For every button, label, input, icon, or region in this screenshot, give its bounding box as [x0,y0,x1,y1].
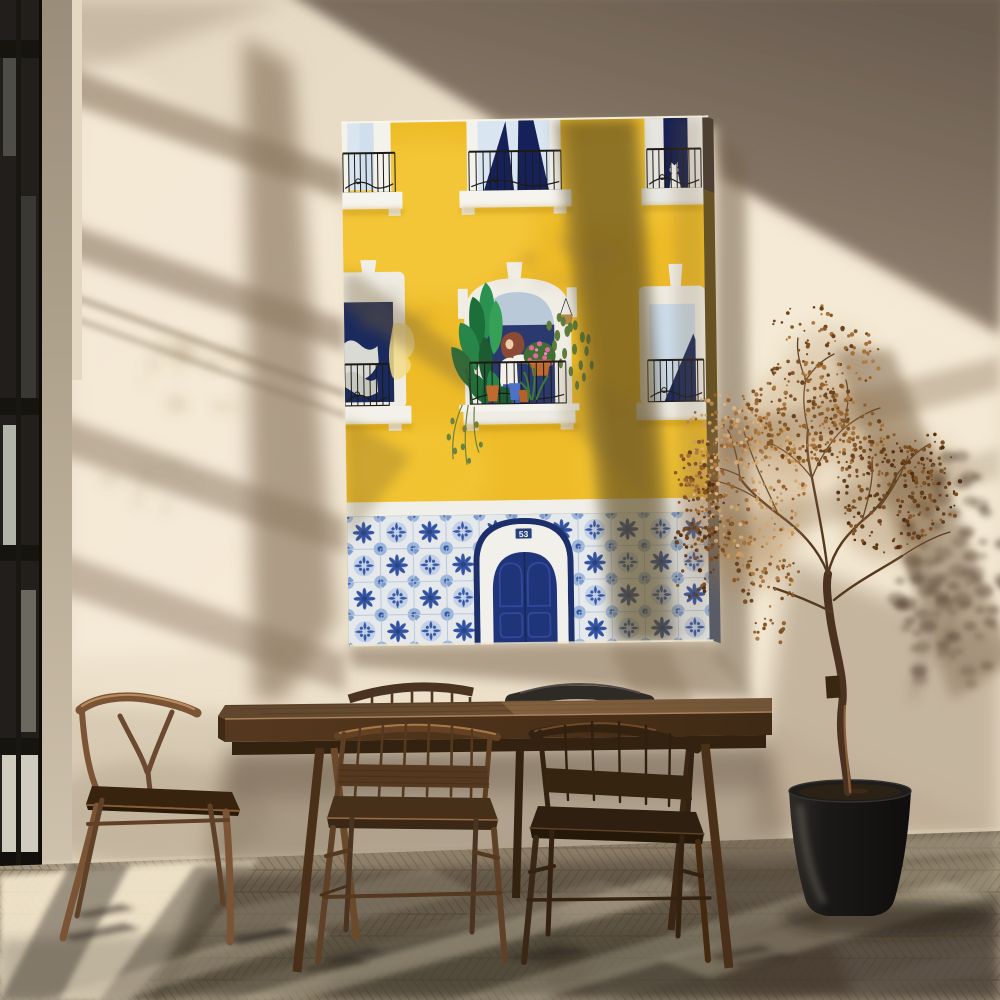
svg-text:53: 53 [519,529,529,539]
